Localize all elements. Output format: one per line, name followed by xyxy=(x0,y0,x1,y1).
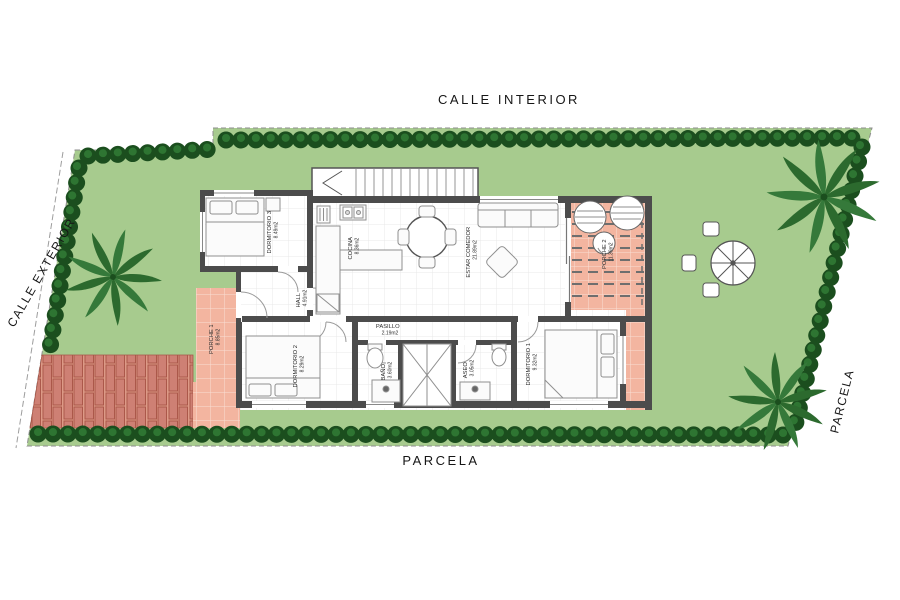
exterior-stairs xyxy=(312,168,478,197)
brick-driveway xyxy=(30,355,193,428)
site-plan-canvas: CALLE INTERIOR PARCELA CALLE EXTERIOR PA… xyxy=(0,0,900,600)
label-calle-interior: CALLE INTERIOR xyxy=(438,92,580,107)
site-plan: CALLE INTERIOR PARCELA CALLE EXTERIOR PA… xyxy=(0,0,900,600)
label-parcela-bottom: PARCELA xyxy=(402,453,479,468)
wardrobe xyxy=(403,344,451,406)
hedge-top xyxy=(226,138,864,140)
bed-dormitorio1 xyxy=(545,330,617,398)
label-parcela-right: PARCELA xyxy=(827,368,856,435)
hedge-top-left xyxy=(88,149,216,156)
bed-dormitorio2 xyxy=(246,336,320,398)
